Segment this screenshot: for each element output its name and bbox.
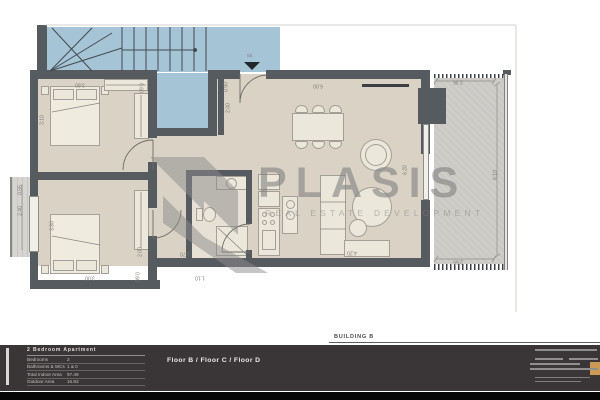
- info-row-label: Bathrooms & WCs: [27, 364, 67, 369]
- info-row-value: 1 & 0: [67, 364, 78, 369]
- apartment-info-table: 2 Bedroom Apartment Bedrooms2Bathrooms &…: [27, 347, 145, 386]
- dimension-label: 2.40: [19, 206, 24, 216]
- entrance-arrow-icon: [244, 62, 260, 70]
- floors-label: Floor B / Floor C / Floor D: [167, 357, 261, 364]
- dimension-label: 6.20: [404, 165, 409, 175]
- info-row: Total Indoor Area97.49: [27, 371, 145, 379]
- floor-plan-sheet: 3.800.603.100.552.403.802.003.000.601.70…: [0, 0, 600, 400]
- dimension-label: 2.55: [453, 259, 463, 264]
- title-block-bar: 2 Bedroom Apartment Bedrooms2Bathrooms &…: [0, 345, 600, 391]
- info-row-label: Total Indoor Area: [27, 372, 67, 377]
- bottom-black-strip: [0, 392, 600, 400]
- info-row-label: Bedrooms: [27, 357, 67, 362]
- dimension-label: 2.00: [227, 103, 232, 113]
- dimension-label: 3.80: [75, 82, 85, 87]
- info-row: Bathrooms & WCs1 & 0: [27, 364, 145, 372]
- dimension-label: 6.00: [313, 83, 323, 88]
- dimension-label: 3.80: [51, 221, 56, 231]
- dimension-label: 3.10: [41, 115, 46, 125]
- info-row-value: 2: [67, 357, 70, 362]
- dimension-label: 4.20: [347, 250, 357, 255]
- entrance-label: 5B: [247, 53, 253, 58]
- info-row-value: 97.49: [67, 372, 79, 377]
- dimension-label: 3.00: [85, 275, 95, 280]
- dimension-label: 0.90: [225, 82, 230, 92]
- apartment-title: 2 Bedroom Apartment: [27, 347, 145, 356]
- dimension-label: 6.10: [494, 170, 499, 180]
- info-row-value: 16.83: [67, 379, 79, 384]
- title-block-left-tick: [6, 348, 9, 385]
- info-row: Bedrooms2: [27, 356, 145, 364]
- info-row: Outdoor Area16.83: [27, 379, 145, 387]
- apartment-info-rows: Bedrooms2Bathrooms & WCs1 & 0Total Indoo…: [27, 356, 145, 386]
- dimension-layer: 3.800.603.100.552.403.802.003.000.601.70…: [0, 0, 600, 340]
- dimension-label: 1.10: [195, 275, 205, 280]
- dimension-label: 0.60: [134, 272, 139, 282]
- dimension-label: 2.35: [453, 79, 463, 84]
- dimension-label: 2.00: [139, 247, 144, 257]
- building-underline: [329, 342, 600, 343]
- info-row-label: Outdoor Area: [27, 379, 67, 384]
- dimension-label: 0.60: [138, 83, 143, 93]
- dimension-label: 0.55: [19, 185, 24, 195]
- dimension-label: 1.70: [180, 251, 190, 256]
